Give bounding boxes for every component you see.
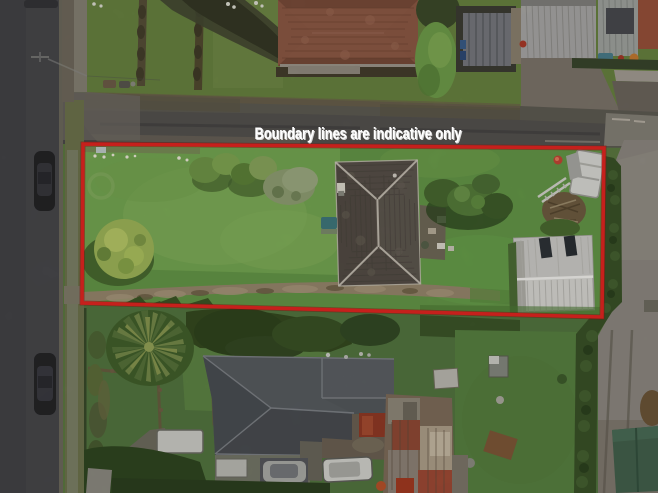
svg-text:Boundary lines are indicative: Boundary lines are indicative only [255,125,463,143]
